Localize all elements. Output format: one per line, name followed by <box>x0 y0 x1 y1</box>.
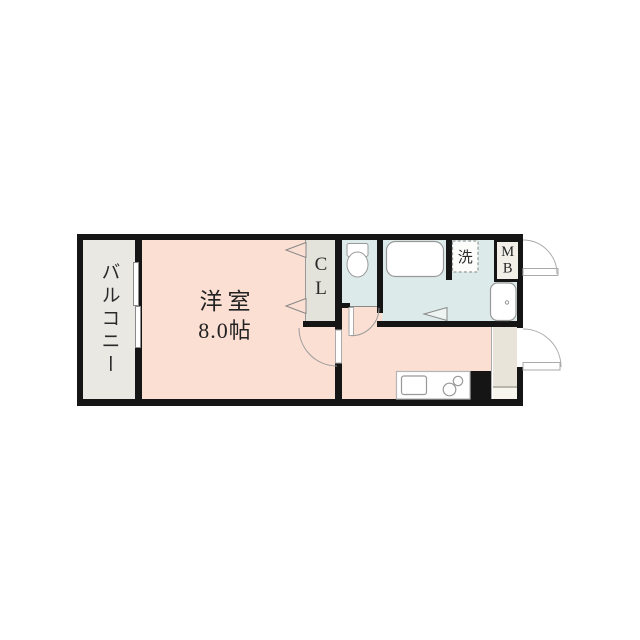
laundry-label: 洗 <box>458 246 473 267</box>
wall-mid-upper <box>335 240 342 330</box>
toilet-area <box>342 240 377 306</box>
wall-closet-bottom <box>303 321 342 327</box>
balcony-label: バルコニー <box>96 262 123 377</box>
window-pane-lower <box>135 306 142 348</box>
meter-box-label: MB <box>500 244 515 277</box>
wall-toilet-stub <box>342 303 350 308</box>
wall-mid-lower <box>335 363 342 405</box>
bathroom-area <box>382 240 446 321</box>
entrance-door-arc <box>523 329 561 367</box>
western-room-name: 洋室 <box>195 287 256 316</box>
wall-bath-washroom <box>446 240 452 280</box>
entry-kitchen-line <box>491 327 492 399</box>
meter-box-door-leaf <box>523 269 558 276</box>
entry-step-area <box>493 388 518 400</box>
meter-box: MB <box>494 239 521 282</box>
balcony-label-wrap: バルコニー <box>83 244 135 395</box>
western-room-size: 8.0帖 <box>198 316 252 345</box>
western-room-label: 洋室 8.0帖 <box>151 285 299 347</box>
laundry-label-wrap: 洗 <box>453 243 479 270</box>
wall-outer-right-lower <box>517 367 523 406</box>
wall-outer-bottom <box>77 399 523 406</box>
wall-wet-bottom <box>377 321 518 327</box>
meter-box-door-arc <box>523 240 557 274</box>
entrance-door-leaf <box>523 363 560 371</box>
toilet-door-threshold <box>350 306 377 308</box>
closet-label-wrap: CL <box>306 248 335 308</box>
wall-toilet-bath <box>377 240 383 313</box>
closet-label: CL <box>310 254 332 302</box>
floor-plan: MB バルコ <box>0 0 640 640</box>
kitchen-end-block <box>470 371 492 399</box>
entry-area <box>493 327 518 386</box>
wall-outer-top <box>77 234 523 240</box>
room-door-leaf <box>336 330 342 363</box>
